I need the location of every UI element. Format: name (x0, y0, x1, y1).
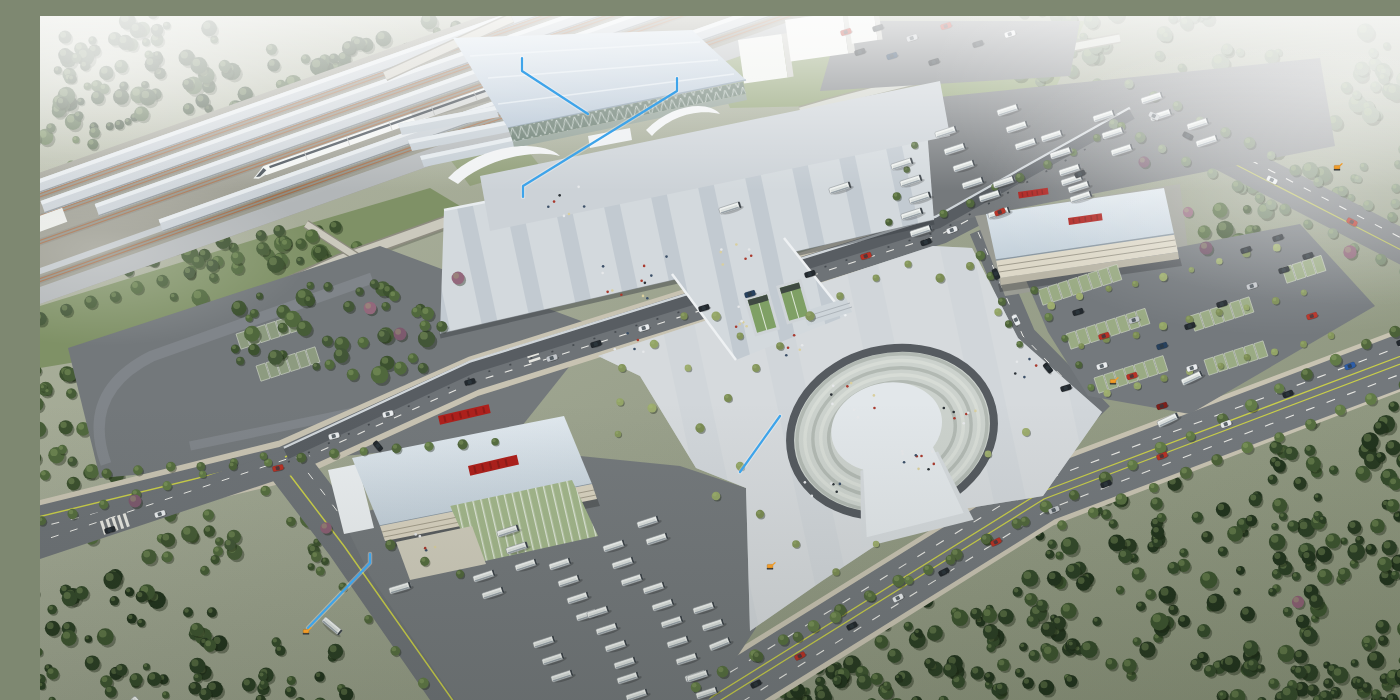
station-masterplan-render (40, 16, 1400, 700)
atmosphere-haze (40, 16, 1400, 700)
aerial-render-figure: Bird's-eye 3D architectural visualizatio… (40, 16, 1400, 700)
